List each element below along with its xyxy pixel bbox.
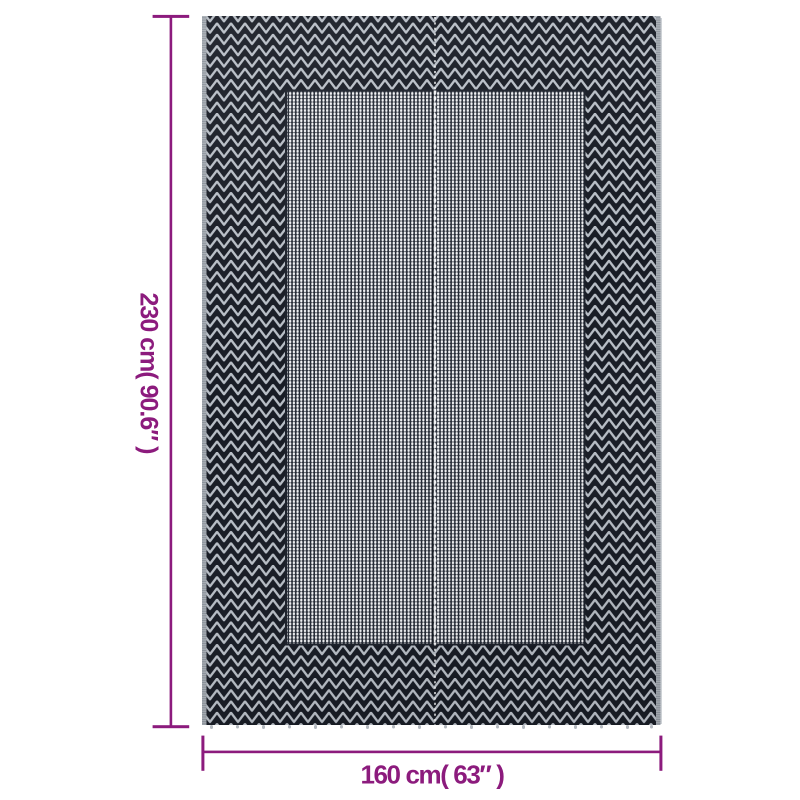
svg-text:230 cm( 90.6″ ): 230 cm( 90.6″ ) [135,293,163,455]
svg-text:160 cm( 63″ ): 160 cm( 63″ ) [360,760,504,790]
